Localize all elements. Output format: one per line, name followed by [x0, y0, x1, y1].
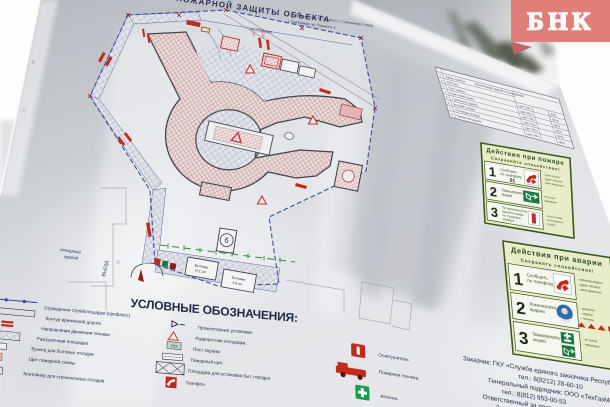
svg-text:3: 3: [490, 204, 498, 220]
svg-text:3: 3: [518, 327, 529, 348]
svg-text:ПО: ПО: [171, 343, 177, 349]
svg-text:1: 1: [488, 164, 496, 180]
svg-text:01: 01: [510, 178, 516, 185]
svg-text:2: 2: [489, 184, 497, 200]
svg-text:2: 2: [515, 297, 526, 318]
svg-text:БНК: БНК: [527, 9, 595, 36]
